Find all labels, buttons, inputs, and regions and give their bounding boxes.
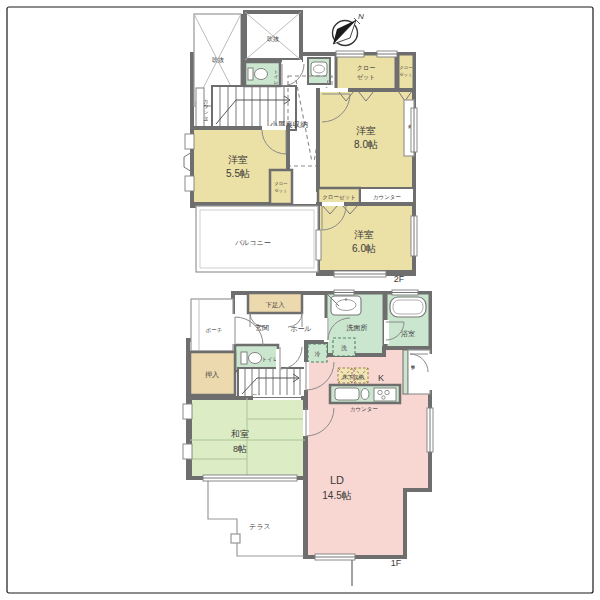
floor-1-label: 1F bbox=[391, 558, 402, 568]
kitchen-sink-icon bbox=[335, 388, 359, 400]
f2-void-center: 吹抜 bbox=[245, 12, 301, 60]
floor-2-label: 2F bbox=[394, 274, 405, 284]
f1-getabako-label: 下足入 bbox=[265, 301, 285, 309]
stove-icon bbox=[374, 388, 396, 401]
f1-senmenjo-label: 洗面所 bbox=[346, 324, 368, 332]
room-name: 和室 bbox=[231, 429, 249, 439]
floor-2-plan: 吹抜 吹抜 カウンター トイレ bbox=[184, 12, 417, 284]
room-name: 洋室 bbox=[354, 229, 374, 240]
closet-label: ゼット bbox=[400, 72, 413, 77]
f1-bathroom: 浴室 bbox=[386, 293, 430, 348]
floor-plan-drawing: 吹抜 吹抜 カウンター トイレ bbox=[0, 0, 600, 600]
f2-balcony: バルコニー bbox=[196, 206, 318, 272]
f2-closet-small: クロー ゼット bbox=[398, 54, 414, 90]
f1-refrigerator-label: 冷 bbox=[315, 351, 321, 357]
f1-refrigerator: 冷 bbox=[308, 344, 327, 362]
toilet-tank-icon bbox=[248, 68, 253, 80]
closet-label: ゼット bbox=[275, 188, 288, 193]
room-name: 洋室 bbox=[356, 125, 376, 136]
room-size: 5.5帖 bbox=[226, 168, 250, 179]
f1-bathroom-label: 浴室 bbox=[401, 330, 415, 338]
f2-room-yoshitsu8: 洋室 8.0帖 bbox=[318, 90, 414, 190]
f2-room-yoshitsu6: 洋室 6.0帖 bbox=[318, 204, 414, 272]
f1-terrace-label: テラス bbox=[249, 523, 271, 530]
f1-room-washitsu: 和室 8帖 bbox=[190, 398, 305, 478]
f1-counter-label: カウンター bbox=[350, 406, 378, 412]
closet-label: クロー bbox=[357, 65, 375, 71]
toilet-bowl-icon bbox=[249, 353, 262, 364]
closet-label: ゼット bbox=[357, 74, 375, 80]
floor-plan-page: 吹抜 吹抜 カウンター トイレ bbox=[0, 0, 600, 600]
closet-label: クロー bbox=[275, 181, 288, 186]
f2-closet-strip: クローゼット bbox=[318, 188, 360, 204]
f1-washer-label: 洗 bbox=[341, 345, 347, 352]
room-size: 14.5帖 bbox=[322, 490, 351, 501]
f2-void-left-label: 吹抜 bbox=[212, 56, 224, 63]
room-size: 8.0帖 bbox=[354, 139, 378, 150]
f1-oshiire: 押入 bbox=[190, 352, 235, 395]
f2-counter-strip: カウンター bbox=[360, 188, 414, 204]
f2-closet-large: クロー ゼット bbox=[336, 54, 396, 90]
f2-toilet-room: トイレ bbox=[245, 62, 280, 86]
compass-north-label: N bbox=[358, 12, 364, 21]
closet-label: クロー bbox=[400, 65, 413, 70]
f1-porch: ポーチ bbox=[191, 299, 233, 351]
f1-porch-label: ポーチ bbox=[206, 327, 223, 333]
toilet-tank-icon bbox=[241, 352, 247, 364]
f2-closet-strip-label: クローゼット bbox=[322, 194, 356, 200]
f1-oshiire-label: 押入 bbox=[205, 371, 219, 379]
f2-counter-stair-label: カウンター bbox=[203, 95, 209, 121]
f2-closet-mid: クロー ゼット bbox=[270, 170, 292, 204]
room-name: LD bbox=[330, 474, 344, 486]
f2-counter-strip-label: カウンター bbox=[373, 194, 401, 200]
room-name: 洋室 bbox=[228, 154, 248, 165]
f1-washer: 洗 bbox=[333, 338, 355, 356]
f1-katteguchi: 勝手口 bbox=[403, 350, 433, 394]
f1-kitchen-label: K bbox=[378, 373, 384, 383]
f2-balcony-label: バルコニー bbox=[234, 239, 271, 246]
f2-basin-nook bbox=[308, 58, 330, 84]
f2-void-center-label: 吹抜 bbox=[267, 35, 279, 42]
toilet-bowl-icon bbox=[255, 69, 268, 80]
room-size: 6.0帖 bbox=[352, 243, 376, 254]
room-size: 8帖 bbox=[233, 444, 247, 454]
f1-underfloor-label: 床下収納 bbox=[342, 374, 364, 380]
f1-stairs: 物入 bbox=[238, 368, 306, 399]
f1-hall-label: ホール bbox=[290, 325, 311, 332]
